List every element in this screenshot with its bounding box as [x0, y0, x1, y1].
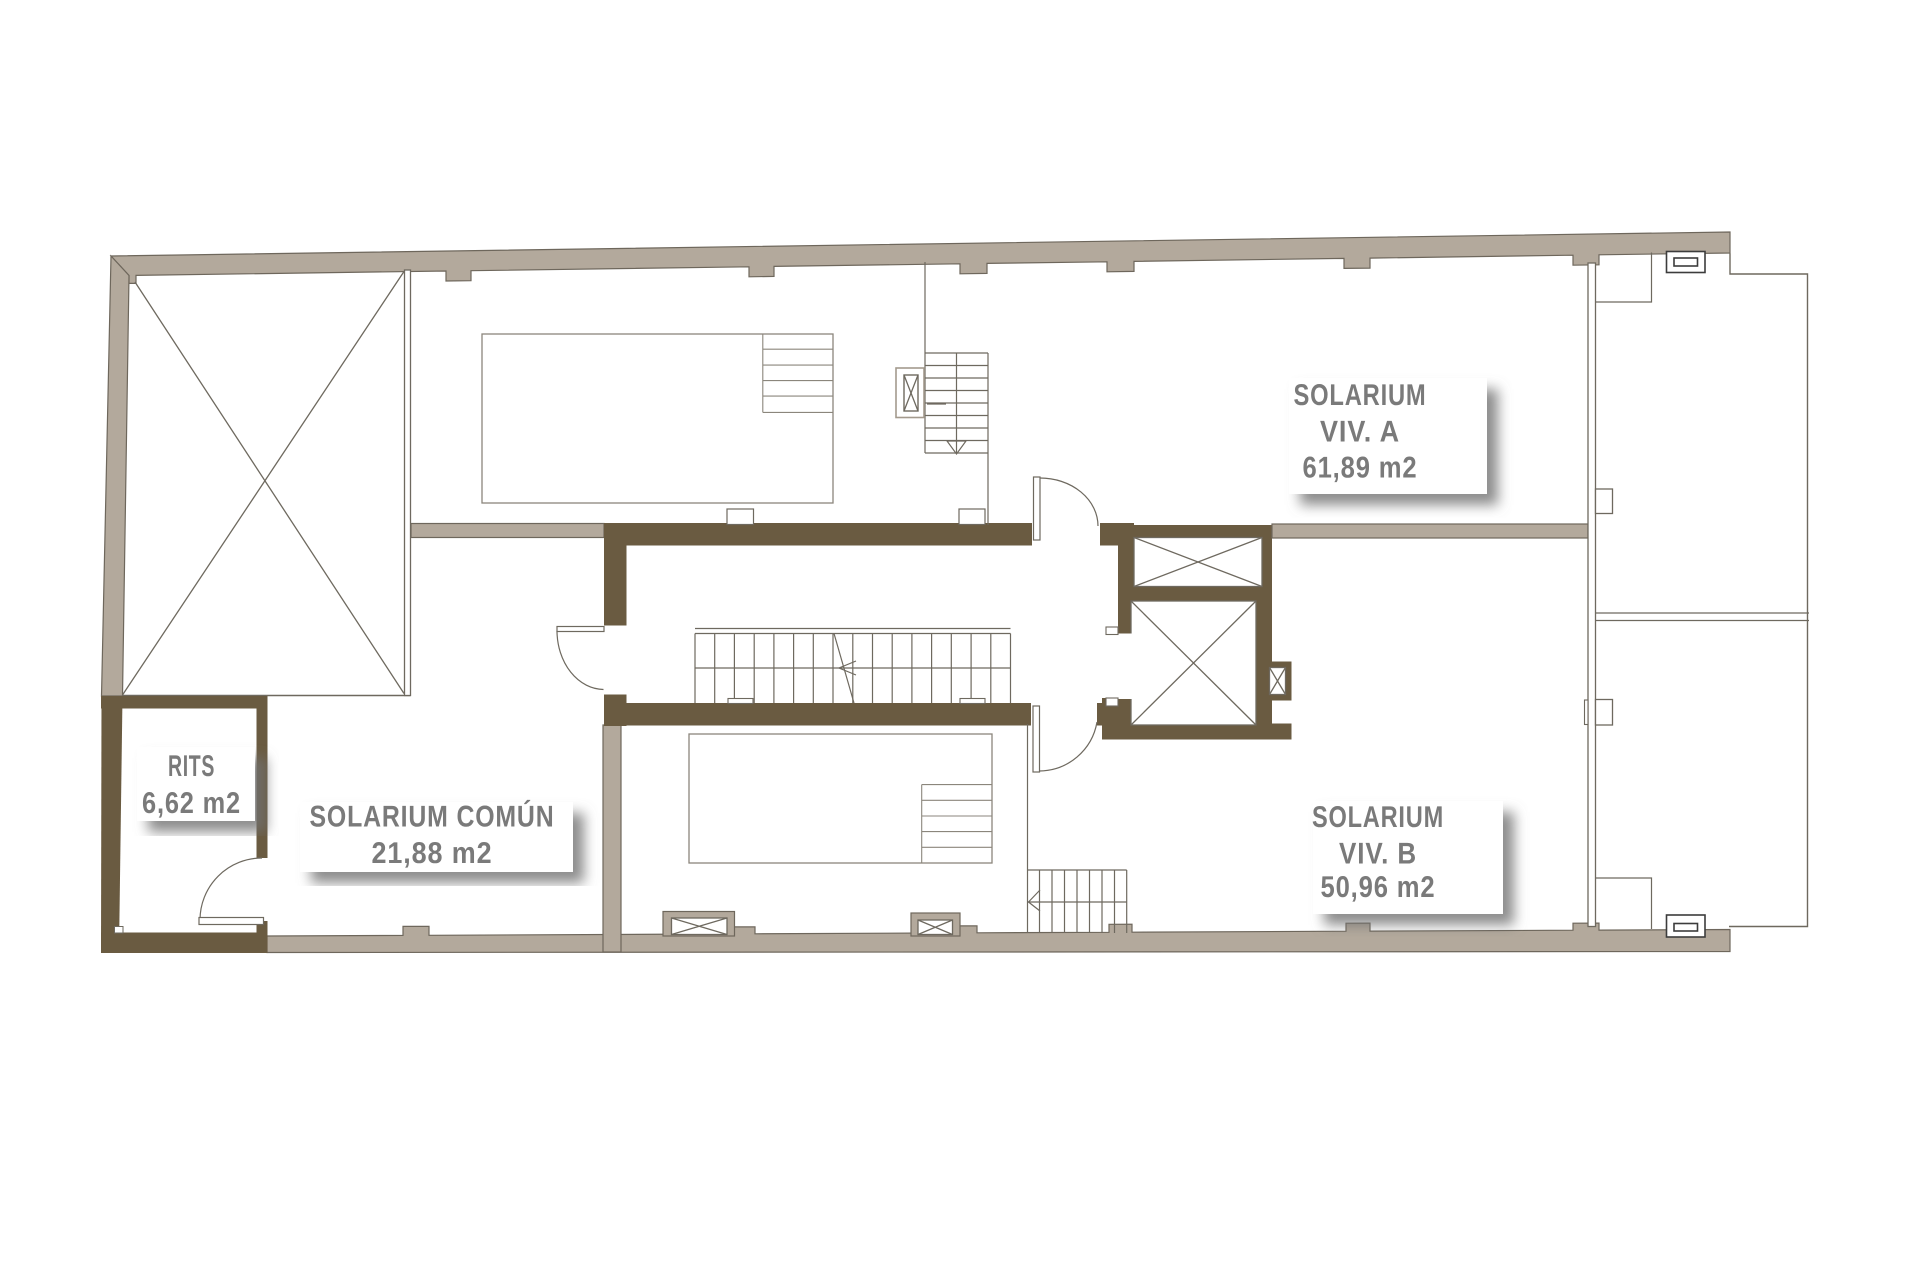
svg-text:SOLARIUM: SOLARIUM: [1294, 379, 1427, 412]
svg-text:VIV. B: VIV. B: [1339, 838, 1417, 871]
svg-text:6,62 m2: 6,62 m2: [142, 787, 241, 820]
svg-text:50,96 m2: 50,96 m2: [1321, 871, 1436, 904]
svg-text:61,89 m2: 61,89 m2: [1303, 452, 1418, 485]
svg-text:RITS: RITS: [168, 750, 215, 783]
svg-text:SOLARIUM: SOLARIUM: [1312, 801, 1444, 834]
svg-text:21,88 m2: 21,88 m2: [372, 837, 493, 870]
svg-text:VIV. A: VIV. A: [1320, 416, 1400, 449]
svg-text:SOLARIUM COMÚN: SOLARIUM COMÚN: [310, 800, 555, 834]
